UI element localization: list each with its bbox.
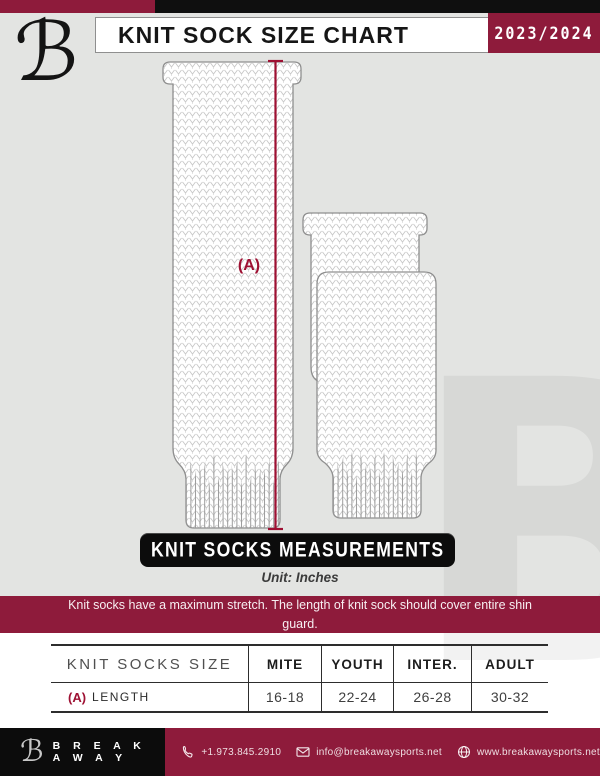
footer-logo-icon: ℬ (20, 737, 44, 767)
length-value-inter: 26-28 (393, 683, 471, 711)
footer: ℬ B R E A K A W A Y +1.973.845.2910 info… (0, 728, 600, 776)
size-table-header-row: KNIT SOCKS SIZE MITE YOUTH INTER. ADULT (51, 646, 548, 682)
column-header-youth: YOUTH (321, 646, 393, 682)
measurements-banner-label: KNIT SOCKS MEASUREMENTS (151, 538, 444, 562)
season-badge: 2023/2024 (488, 13, 600, 53)
tall-sock (163, 62, 301, 530)
season-label: 2023/2024 (494, 23, 593, 44)
footer-website-text: www.breakawaysports.net (477, 747, 600, 758)
row-prefix-a: (A) (68, 690, 86, 705)
sock-diagram: (A) (0, 55, 600, 535)
globe-icon (457, 745, 471, 759)
row-label-length: (A) LENGTH (51, 683, 248, 711)
length-value-adult: 30-32 (471, 683, 548, 711)
unit-label: Unit: Inches (0, 570, 600, 585)
footer-email[interactable]: info@breakawaysports.net (296, 745, 442, 759)
phone-icon (181, 745, 195, 759)
measurements-banner: KNIT SOCKS MEASUREMENTS (140, 533, 455, 567)
measure-label-a: (A) (238, 257, 260, 274)
page-title: KNIT SOCK SIZE CHART (118, 22, 409, 49)
footer-phone-text: +1.973.845.2910 (201, 747, 281, 758)
row-label-text: LENGTH (92, 690, 150, 704)
footer-brand-panel: ℬ B R E A K A W A Y (0, 728, 165, 776)
top-strip-black (155, 0, 600, 13)
footer-contact-panel: +1.973.845.2910 info@breakawaysports.net… (165, 728, 600, 776)
footer-phone[interactable]: +1.973.845.2910 (181, 745, 281, 759)
title-box: KNIT SOCK SIZE CHART (95, 17, 489, 53)
size-table-title-cell: KNIT SOCKS SIZE (51, 646, 248, 682)
top-strip (0, 0, 600, 13)
stretch-note-banner: Knit socks have a maximum stretch. The l… (0, 596, 600, 633)
short-sock (317, 272, 436, 518)
email-icon (296, 745, 310, 759)
table-row-length: (A) LENGTH 16-18 22-24 26-28 30-32 (51, 682, 548, 711)
length-value-mite: 16-18 (248, 683, 321, 711)
column-header-mite: MITE (248, 646, 321, 682)
length-value-youth: 22-24 (321, 683, 393, 711)
footer-website[interactable]: www.breakawaysports.net (457, 745, 600, 759)
column-header-adult: ADULT (471, 646, 548, 682)
footer-brand-name: B R E A K A W A Y (53, 740, 166, 764)
size-table: KNIT SOCKS SIZE MITE YOUTH INTER. ADULT … (51, 644, 548, 713)
footer-email-text: info@breakawaysports.net (316, 747, 442, 758)
size-chart-page: ℬ KNIT SOCK SIZE CHART 2023/2024 B (0, 0, 600, 776)
stretch-note-text: Knit socks have a maximum stretch. The l… (60, 596, 540, 632)
column-header-inter: INTER. (393, 646, 471, 682)
